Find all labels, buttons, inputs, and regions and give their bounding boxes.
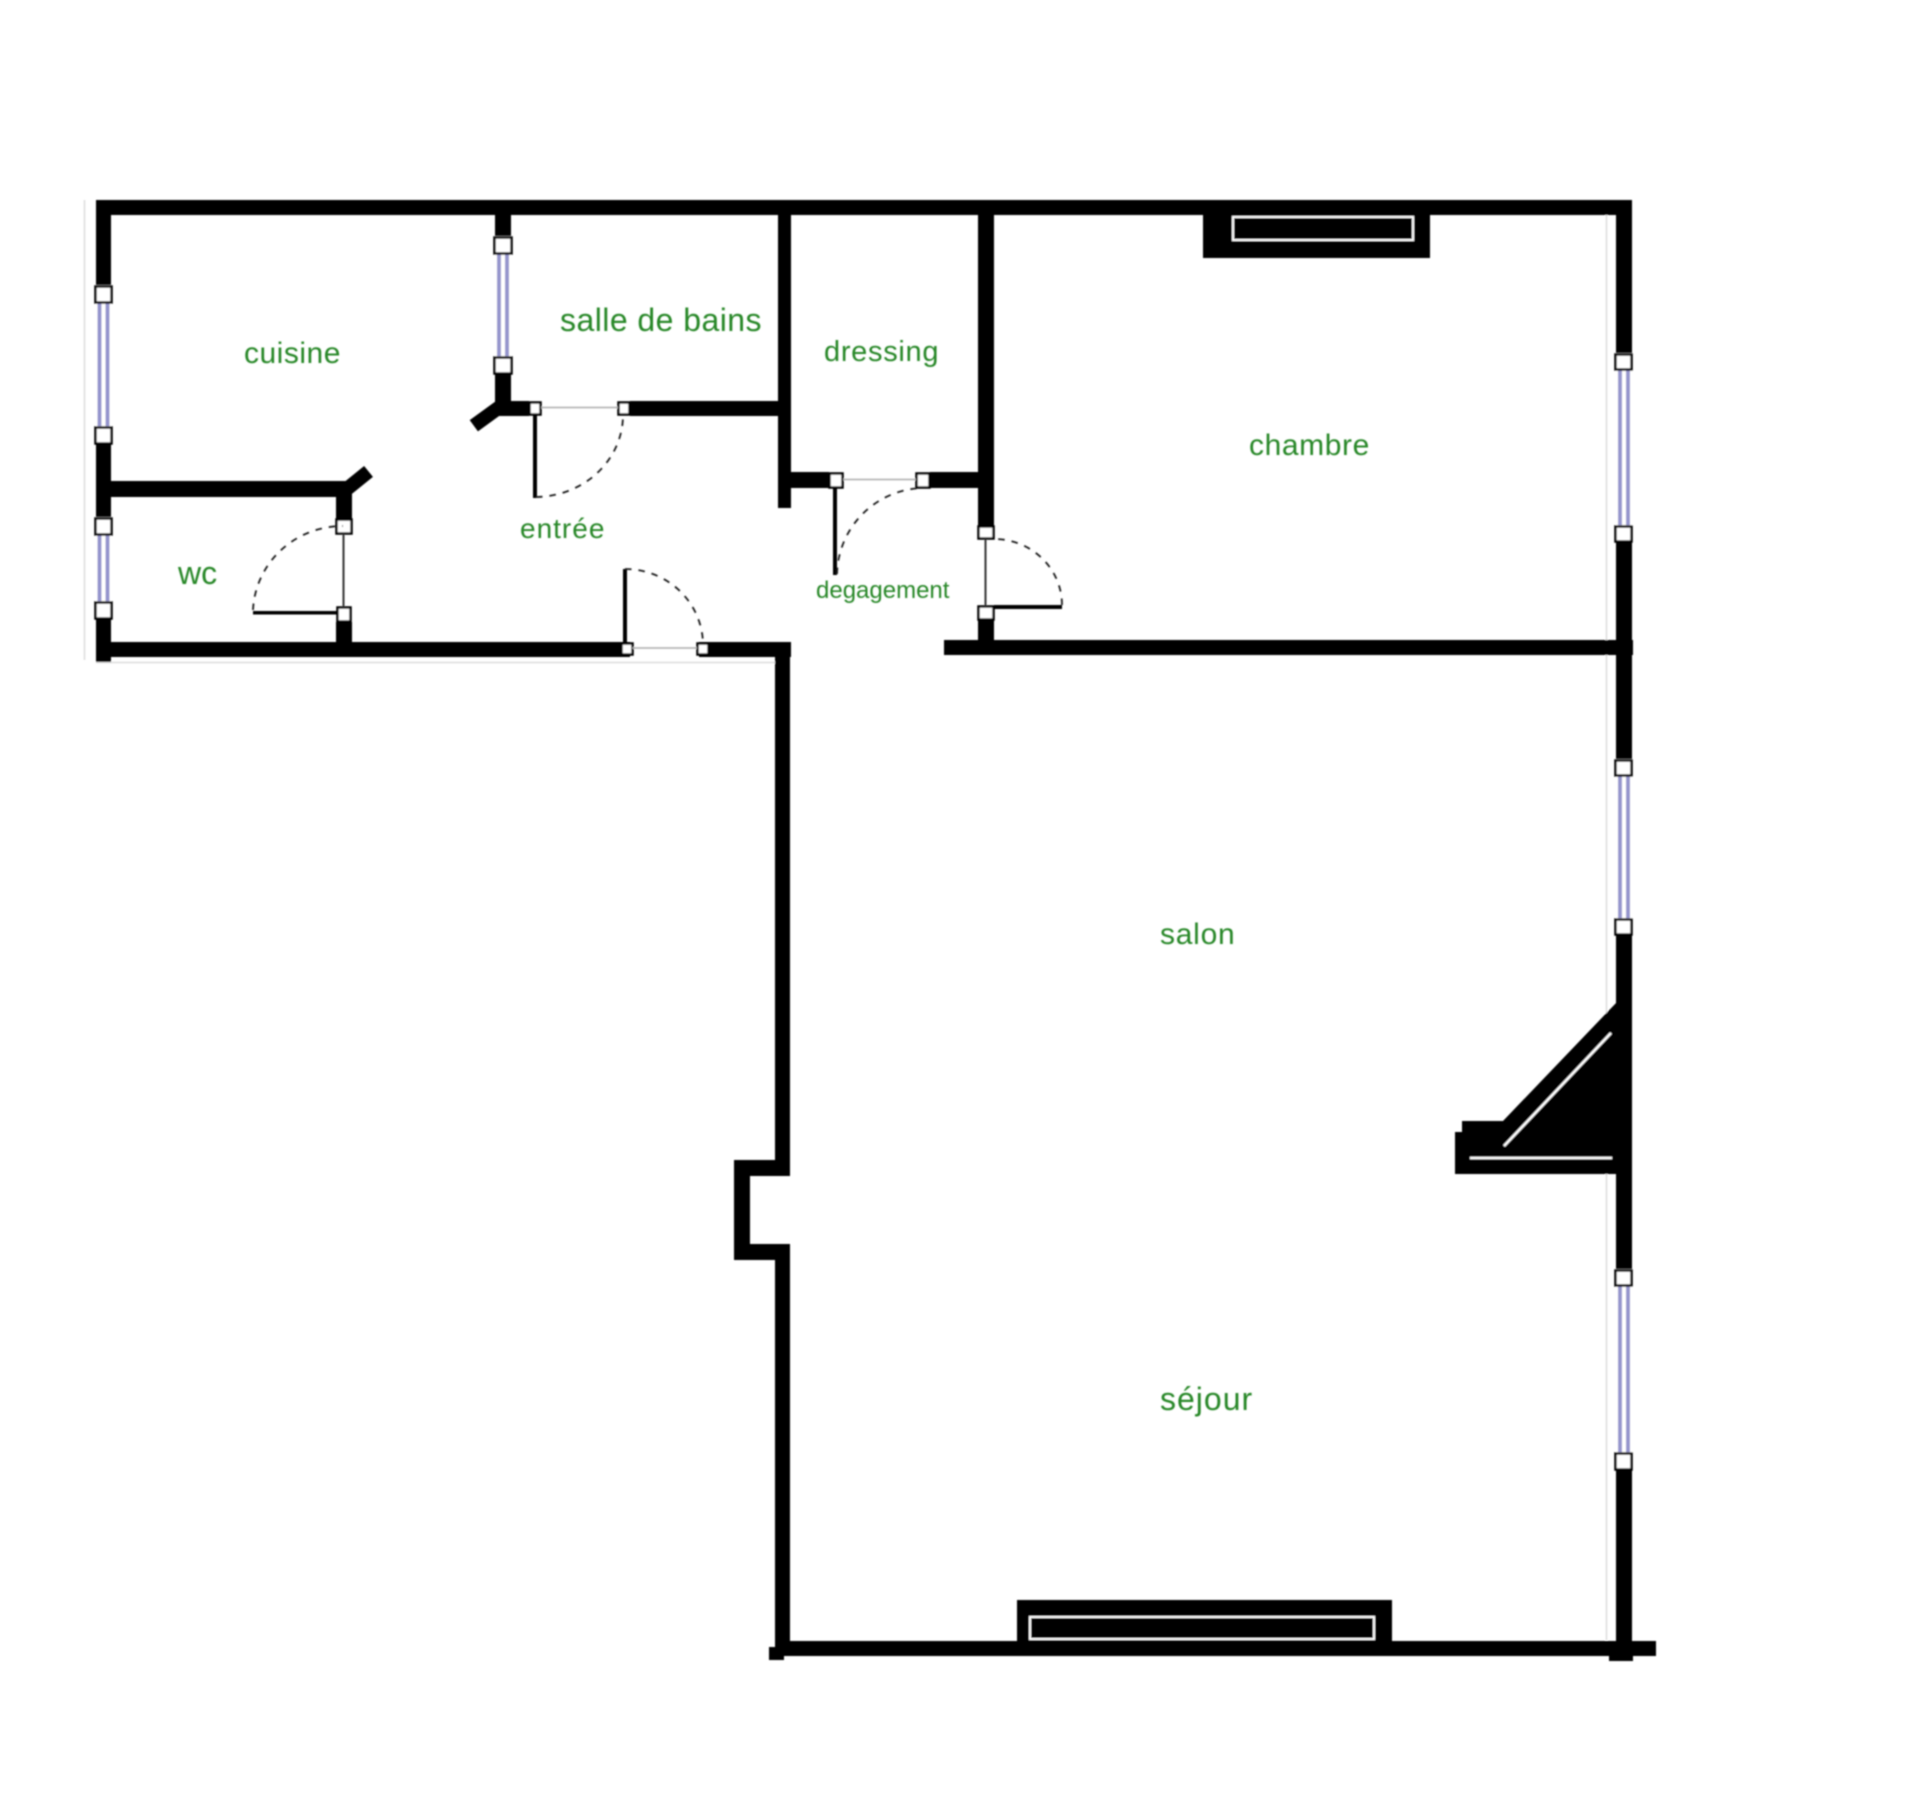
svg-text:wc: wc xyxy=(177,555,217,591)
svg-text:entrée: entrée xyxy=(520,513,605,544)
svg-text:séjour: séjour xyxy=(1160,1381,1253,1417)
svg-text:salle de bains: salle de bains xyxy=(560,302,762,338)
svg-text:cuisine: cuisine xyxy=(244,337,341,370)
svg-text:degagement: degagement xyxy=(816,577,950,604)
svg-text:chambre: chambre xyxy=(1249,429,1370,462)
svg-text:salon: salon xyxy=(1160,918,1235,951)
svg-text:dressing: dressing xyxy=(824,336,939,368)
